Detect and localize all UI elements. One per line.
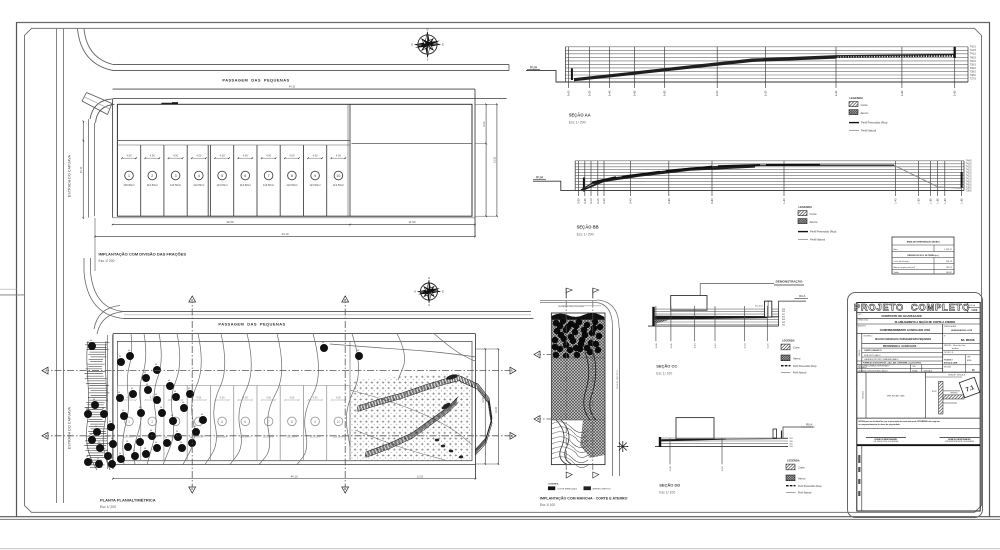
svg-text:GUAR/05A/2021-LOTE: GUAR/05A/2021-LOTE	[951, 329, 973, 332]
svg-text:0+00: 0+00	[568, 90, 571, 96]
svg-text:113.50m²: 113.50m²	[217, 435, 228, 439]
svg-text:RESUMO DO MOV. DE TERRA (m³): RESUMO DO MOV. DE TERRA (m³)	[907, 254, 938, 257]
svg-text:4.50: 4.50	[313, 396, 318, 399]
svg-text:10: 10	[336, 174, 340, 178]
svg-text:0+20: 0+20	[603, 198, 606, 204]
svg-text:LEGENDA: LEGENDA	[782, 339, 795, 343]
svg-text:5: 5	[221, 420, 223, 424]
svg-text:Corte: Corte	[793, 346, 800, 350]
svg-text:DADOS: DADOS	[858, 349, 861, 356]
svg-text:B: B	[45, 435, 47, 438]
svg-text:8: 8	[291, 174, 293, 178]
svg-text:4.50: 4.50	[220, 396, 225, 399]
svg-text:743.0: 743.0	[966, 167, 972, 169]
svg-text:738.5: 738.5	[970, 70, 977, 73]
svg-text:ESTRADA DO CAPUAVA: ESTRADA DO CAPUAVA	[67, 406, 71, 449]
svg-text:FOLHA: FOLHA	[969, 304, 976, 307]
svg-text:44.10: 44.10	[289, 84, 296, 88]
svg-text:PROJETO COMPLETO: PROJETO COMPLETO	[854, 301, 970, 312]
svg-text:0+20: 0+20	[589, 90, 592, 96]
svg-text:113.50m²: 113.50m²	[240, 183, 251, 187]
svg-text:IMPLANTAÇÃO COM DIVISÃO DAS FR: IMPLANTAÇÃO COM DIVISÃO DAS FRAÇÕES	[99, 252, 187, 257]
svg-text:VER PELAS VIAS: VER PELAS VIAS	[887, 395, 905, 398]
svg-text:0+25: 0+25	[767, 343, 769, 349]
svg-text:1+55: 1+55	[929, 198, 932, 204]
svg-text:113.50m²: 113.50m²	[147, 183, 158, 187]
svg-text:739.5: 739.5	[966, 188, 972, 190]
svg-text:113.50m²: 113.50m²	[310, 435, 321, 439]
svg-text:BA. BRASIL: BA. BRASIL	[961, 339, 976, 342]
svg-text:113.50m²: 113.50m²	[286, 183, 297, 187]
svg-text:SUPERINTENDENTE GUILHERME: SUPERINTENDENTE GUILHERME	[945, 441, 975, 443]
svg-text:Perfil Natural: Perfil Natural	[793, 372, 807, 375]
svg-text:8: 8	[291, 420, 293, 424]
svg-text:01/09: 01/09	[971, 310, 977, 312]
svg-text:0+15: 0+15	[597, 198, 600, 204]
svg-text:Esc 1/ 100: Esc 1/ 100	[656, 371, 672, 375]
svg-text:958,15: 958,15	[946, 261, 953, 263]
svg-text:C: C	[191, 299, 193, 302]
svg-text:LEGENDA: LEGENDA	[850, 96, 863, 100]
svg-text:0+60: 0+60	[634, 90, 637, 96]
svg-text:CAFÉ/ESCRITÓRIO DIMENSIONADO: CAFÉ/ESCRITÓRIO DIMENSIONADO	[864, 358, 899, 361]
svg-text:Aterro: Aterro	[793, 356, 801, 360]
svg-text:FORMA A LEI DOS APOIOS + (A) L: FORMA A LEI DOS APOIOS + (A) L DEL CONFO…	[863, 361, 922, 364]
svg-text:Saldo: Saldo	[894, 272, 900, 274]
svg-text:828: 828	[790, 438, 793, 440]
svg-text:1+60: 1+60	[944, 198, 947, 204]
svg-text:4.50: 4.50	[289, 154, 295, 158]
svg-text:740.0: 740.0	[966, 185, 972, 187]
svg-text:0+00: 0+00	[578, 198, 581, 204]
svg-text:0+60: 0+60	[668, 198, 671, 204]
svg-text:4.50: 4.50	[243, 396, 248, 399]
svg-text:4.50: 4.50	[336, 396, 341, 399]
svg-text:840: 840	[782, 324, 785, 326]
svg-text:D: D	[344, 488, 346, 491]
svg-text:FRENTE – Tribunal de Zona: FRENTE – Tribunal de Zona	[944, 344, 965, 347]
svg-text:Perfil Natural: Perfil Natural	[861, 129, 876, 133]
svg-text:9: 9	[314, 420, 316, 424]
svg-text:737.5: 737.5	[970, 77, 977, 80]
svg-text:113.50m²: 113.50m²	[193, 183, 204, 187]
svg-text:4.50: 4.50	[220, 154, 226, 158]
svg-text:4.50: 4.50	[243, 154, 249, 158]
svg-text:ATERRO (REPOS.): ATERRO (REPOS.)	[593, 488, 612, 491]
svg-text:no reaproveitamento de obras d: no reaproveitamento de obras da propried…	[858, 423, 900, 426]
svg-text:113.50m²: 113.50m²	[263, 183, 274, 187]
svg-text:113.50m²: 113.50m²	[217, 183, 228, 187]
svg-text:1+80: 1+80	[954, 90, 957, 96]
svg-text:Corte: Corte	[810, 212, 817, 216]
svg-text:0+80: 0+80	[663, 90, 666, 96]
svg-text:1+50: 1+50	[917, 198, 920, 204]
svg-text:Perfil Pretendido (Rua): Perfil Pretendido (Rua)	[798, 485, 822, 488]
svg-text:113.50m²: 113.50m²	[310, 183, 321, 187]
svg-text:12.00: 12.00	[417, 474, 424, 478]
svg-text:ESTRADA DO CAPUAVA: ESTRADA DO CAPUAVA	[67, 154, 71, 197]
svg-text:744.0: 744.0	[966, 161, 972, 163]
svg-text:741.0: 741.0	[966, 179, 972, 181]
svg-text:RUA: RUA	[806, 423, 812, 427]
svg-text:834: 834	[790, 446, 793, 448]
svg-text:113.50m²: 113.50m²	[170, 183, 181, 187]
svg-text:2: 2	[151, 174, 153, 178]
svg-text:10: 10	[336, 420, 340, 424]
svg-text:B: B	[511, 435, 513, 438]
svg-text:125.80m²: 125.80m²	[124, 435, 135, 439]
svg-text:5: 5	[221, 174, 223, 178]
svg-text:CONTRATO DE GUARULHOS: CONTRATO DE GUARULHOS	[881, 314, 921, 318]
svg-text:PASSAGEM DAS PEQUENAS: PASSAGEM DAS PEQUENAS	[558, 305, 585, 308]
svg-text:4.50: 4.50	[313, 154, 319, 158]
svg-text:O: O	[414, 291, 416, 294]
svg-text:1+58: 1+58	[937, 198, 940, 204]
svg-text:A: A	[45, 370, 47, 373]
svg-text:834: 834	[782, 316, 785, 318]
svg-text:C: C	[191, 488, 193, 491]
svg-text:Perfil Pretendido (Rua): Perfil Pretendido (Rua)	[793, 365, 817, 368]
svg-text:Esc 1/ 100: Esc 1/ 100	[540, 503, 555, 507]
svg-text:A: A	[537, 354, 539, 357]
svg-text:RUA: RUA	[530, 65, 538, 69]
svg-text:PASSAGEM DAS PEQUENAS: PASSAGEM DAS PEQUENAS	[222, 77, 289, 82]
svg-text:4.50: 4.50	[266, 396, 271, 399]
svg-text:PROVIDENCIAL GUARULHOS: PROVIDENCIAL GUARULHOS	[883, 345, 917, 348]
svg-text:4.50: 4.50	[126, 154, 132, 158]
svg-text:6: 6	[244, 174, 246, 178]
svg-text:789,25: 789,25	[946, 267, 953, 269]
svg-text:RUA DO CARVALHO E PASSAGEM DAS: RUA DO CARVALHO E PASSAGEM DAS PEQUENAS	[875, 338, 932, 341]
svg-text:Corte: Corte	[798, 466, 805, 470]
svg-text:1: 1	[128, 420, 130, 424]
svg-text:Corte: Corte	[861, 103, 868, 107]
svg-text:MURO: MURO	[932, 391, 938, 393]
svg-text:23.30: 23.30	[494, 156, 497, 163]
svg-text:1+20: 1+20	[765, 90, 768, 96]
svg-text:32.60: 32.60	[227, 220, 234, 224]
svg-text:Aterro: Aterro	[810, 220, 818, 224]
svg-text:741.0: 741.0	[970, 53, 977, 56]
svg-text:Aterro: Aterro	[861, 111, 869, 115]
svg-text:1+40: 1+40	[835, 90, 838, 96]
svg-text:Esc 1/ 200: Esc 1/ 200	[99, 259, 115, 263]
svg-text:3: 3	[175, 174, 177, 178]
svg-text:SEÇÃO BB: SEÇÃO BB	[577, 225, 599, 230]
svg-text:739.0: 739.0	[966, 191, 972, 193]
svg-text:113.50m²: 113.50m²	[333, 183, 344, 187]
svg-text:Escadaria: Escadaria	[755, 305, 763, 307]
svg-text:Perfil Pretendido (Rua): Perfil Pretendido (Rua)	[810, 230, 837, 234]
svg-text:Aterro: Aterro	[798, 476, 806, 480]
svg-text:23.30: 23.30	[495, 406, 498, 413]
svg-text:LEGENDA: LEGENDA	[787, 459, 800, 463]
svg-text:IMPLANTAÇÃO COM MANCHA - CORTE: IMPLANTAÇÃO COM MANCHA - CORTE E ATERRO	[540, 496, 628, 501]
svg-text:Perfil Pretendido (Rua): Perfil Pretendido (Rua)	[861, 121, 888, 125]
svg-text:1+00: 1+00	[716, 90, 719, 96]
svg-text:1+60: 1+60	[901, 90, 904, 96]
svg-text:SEÇÃO AA: SEÇÃO AA	[569, 113, 591, 118]
svg-text:740.5: 740.5	[966, 182, 972, 184]
svg-text:832: 832	[790, 443, 793, 445]
svg-text:OBS: OBS	[967, 357, 970, 359]
svg-text:743.5: 743.5	[966, 164, 972, 166]
svg-text:CAMPO BRANCO: CAMPO BRANCO	[864, 349, 882, 352]
svg-text:das Artes: das Artes	[952, 347, 959, 350]
svg-text:TERRENO: TERRENO	[950, 393, 959, 395]
svg-text:RUA: RUA	[799, 294, 805, 298]
svg-text:Corte (desl/ disp.): Corte (desl/ disp.)	[894, 260, 910, 263]
svg-text:SUB-ROTULADO: SUB-ROTULADO	[864, 354, 881, 357]
svg-text:O EMPREENDIMENTO GUARULHOS LTD: O EMPREENDIMENTO GUARULHOS LTDA	[880, 329, 931, 332]
svg-text:DEMONSTRAÇÃO: DEMONSTRAÇÃO	[776, 279, 803, 284]
svg-text:ENDEREÇO: ENDEREÇO	[864, 335, 874, 337]
svg-text:44.10: 44.10	[291, 474, 298, 478]
svg-text:N: N	[427, 28, 429, 31]
svg-text:7: 7	[268, 174, 270, 178]
svg-text:1+00: 1+00	[783, 198, 786, 204]
svg-text:1.258,97: 1.258,97	[944, 249, 953, 251]
svg-text:1+65: 1+65	[961, 198, 964, 204]
svg-text:RUA: RUA	[536, 175, 544, 179]
svg-text:836: 836	[782, 319, 785, 321]
svg-text:1: 1	[128, 174, 130, 178]
svg-text:4.50: 4.50	[266, 154, 272, 158]
svg-text:NOTAS para as dúvidas/fins que: NOTAS para as dúvidas/fins que a aprovaç…	[858, 420, 940, 423]
svg-text:742.0: 742.0	[966, 173, 972, 175]
svg-text:44.10: 44.10	[282, 232, 289, 236]
svg-text:2: 2	[151, 420, 153, 424]
svg-text:CORTE (REMOÇÃO): CORTE (REMOÇÃO)	[557, 488, 577, 491]
svg-text:741.5: 741.5	[966, 176, 972, 178]
svg-text:O: O	[411, 44, 413, 47]
svg-text:TODOS /: TODOS /	[944, 359, 953, 361]
svg-text:9: 9	[314, 174, 316, 178]
svg-text:RUA SEM DENOM.: RUA SEM DENOM.	[616, 370, 619, 390]
svg-text:125.80m²: 125.80m²	[123, 183, 134, 187]
svg-text:OBJ: OBJ	[858, 314, 861, 316]
svg-text:4: 4	[198, 174, 200, 178]
svg-text:DR. ENGE CIVIL GUILHERME: DR. ENGE CIVIL GUILHERME	[874, 441, 900, 443]
svg-text:4.50: 4.50	[196, 154, 202, 158]
svg-text:D: D	[344, 299, 346, 302]
svg-text:SEÇÃO CC: SEÇÃO CC	[656, 364, 677, 369]
svg-text:DESENHO: DESENHO	[858, 367, 867, 369]
svg-text:6: 6	[244, 420, 246, 424]
svg-text:ASSUNTO: ASSUNTO	[858, 325, 867, 328]
svg-text:Esc 1/ 200: Esc 1/ 200	[569, 121, 586, 125]
svg-text:Esc 1/ 100: Esc 1/ 100	[659, 490, 675, 494]
svg-text:Perfil Natural: Perfil Natural	[810, 238, 825, 242]
svg-text:ÁREA DE INTERVENÇÃO (RUAS): ÁREA DE INTERVENÇÃO (RUAS)	[907, 241, 940, 244]
svg-text:113.50m²: 113.50m²	[263, 435, 274, 439]
svg-text:A: A	[511, 370, 513, 373]
svg-text:4.50: 4.50	[196, 396, 201, 399]
svg-text:113.50m²: 113.50m²	[333, 435, 344, 439]
svg-text:4.50: 4.50	[336, 154, 342, 158]
svg-text:Esc 1/ 200: Esc 1/ 200	[577, 233, 594, 237]
svg-text:ESCALA VAR: ESCALA VAR	[944, 361, 958, 364]
svg-text:Perfil Natural: Perfil Natural	[798, 492, 812, 495]
svg-text:11.50: 11.50	[409, 220, 416, 224]
svg-text:Esc 1/ 200: Esc 1/ 200	[100, 505, 116, 509]
svg-text:20.10: 20.10	[79, 166, 83, 173]
svg-text:0+10: 0+10	[590, 198, 593, 204]
svg-text:4.50: 4.50	[150, 154, 156, 158]
svg-text:N: N	[428, 277, 430, 280]
svg-text:LEGENDA: LEGENDA	[799, 205, 812, 209]
svg-text:742.5: 742.5	[966, 170, 972, 172]
svg-text:DETALHE S/ESCALA: DETALHE S/ESCALA	[948, 373, 966, 376]
svg-text:0+40: 0+40	[608, 90, 611, 96]
svg-text:SEÇÃO DD: SEÇÃO DD	[659, 483, 680, 488]
svg-text:8.20: 8.20	[483, 121, 486, 126]
svg-text:0+05: 0+05	[584, 198, 587, 204]
svg-text:0+80: 0+80	[711, 198, 714, 204]
svg-text:4.50: 4.50	[173, 154, 179, 158]
svg-text:830: 830	[782, 311, 785, 313]
svg-text:113.50m²: 113.50m²	[287, 435, 298, 439]
svg-text:CROQUI: CROQUI	[863, 391, 865, 399]
svg-text:PASSAGEM DAS PEQUENAS: PASSAGEM DAS PEQUENAS	[218, 322, 285, 327]
svg-text:0+40: 0+40	[629, 198, 632, 204]
svg-text:PLANTA PLANIALTIMÉTRICA: PLANTA PLANIALTIMÉTRICA	[100, 498, 156, 503]
svg-text:168,87: 168,87	[946, 272, 953, 274]
svg-text:1+40: 1+40	[894, 198, 897, 204]
svg-text:LEGENDA: LEGENDA	[548, 482, 559, 485]
svg-text:Aterro compensado (m³): Aterro compensado (m³)	[894, 266, 916, 269]
svg-text:B: B	[537, 418, 539, 421]
svg-text:4.50: 4.50	[289, 396, 294, 399]
